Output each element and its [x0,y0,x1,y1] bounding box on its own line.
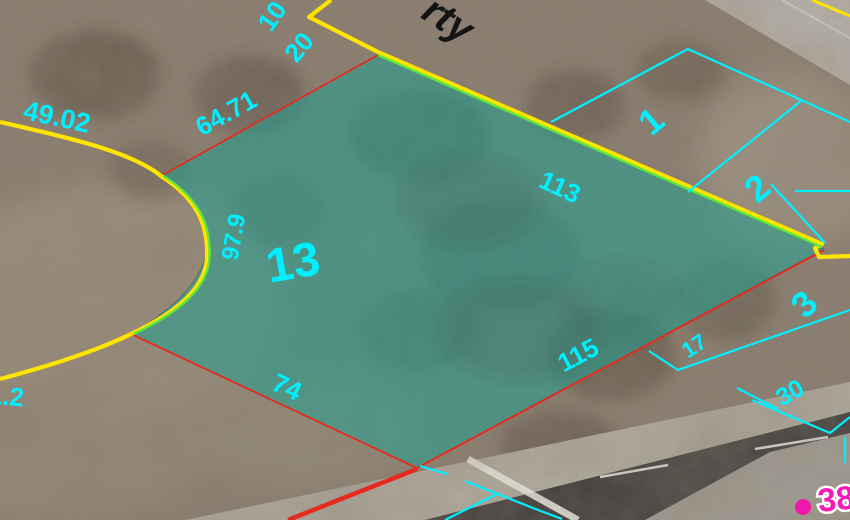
parcel-map[interactable]: 10 20 49.02 64.71 97.9 13 113 115 74 17 … [0,0,850,520]
parcel-13-label[interactable]: 13 [262,232,324,293]
address-label: 38 [816,478,850,519]
address-dot [795,499,811,515]
parcel-map-viewport[interactable]: 10 20 49.02 64.71 97.9 13 113 115 74 17 … [0,0,850,520]
dim-label-left-clipped: 1.2 [0,379,25,412]
